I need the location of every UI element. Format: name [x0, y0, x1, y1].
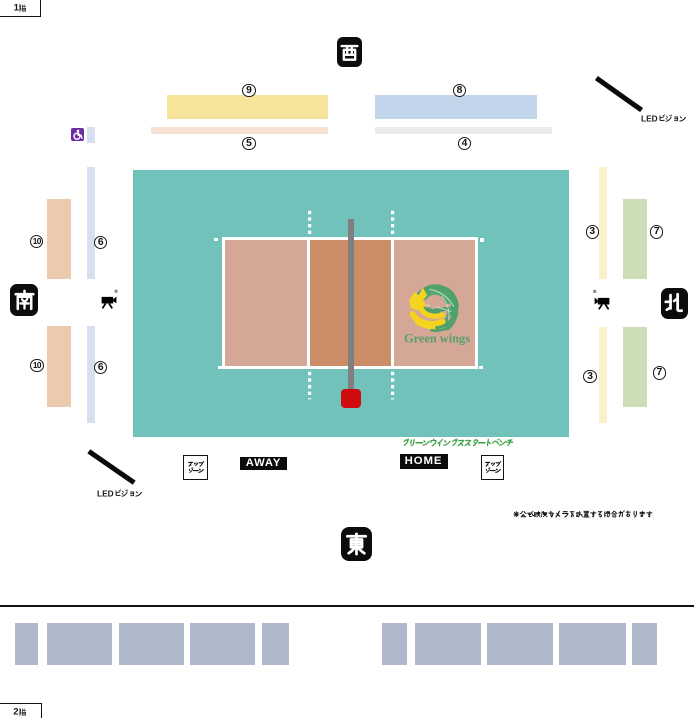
svg-text:Green wings: Green wings [404, 332, 470, 346]
svg-text:LED: LED [641, 114, 658, 124]
svg-text:1: 1 [14, 3, 20, 14]
svg-text:2: 2 [13, 707, 18, 718]
svg-text:LED: LED [97, 489, 114, 499]
